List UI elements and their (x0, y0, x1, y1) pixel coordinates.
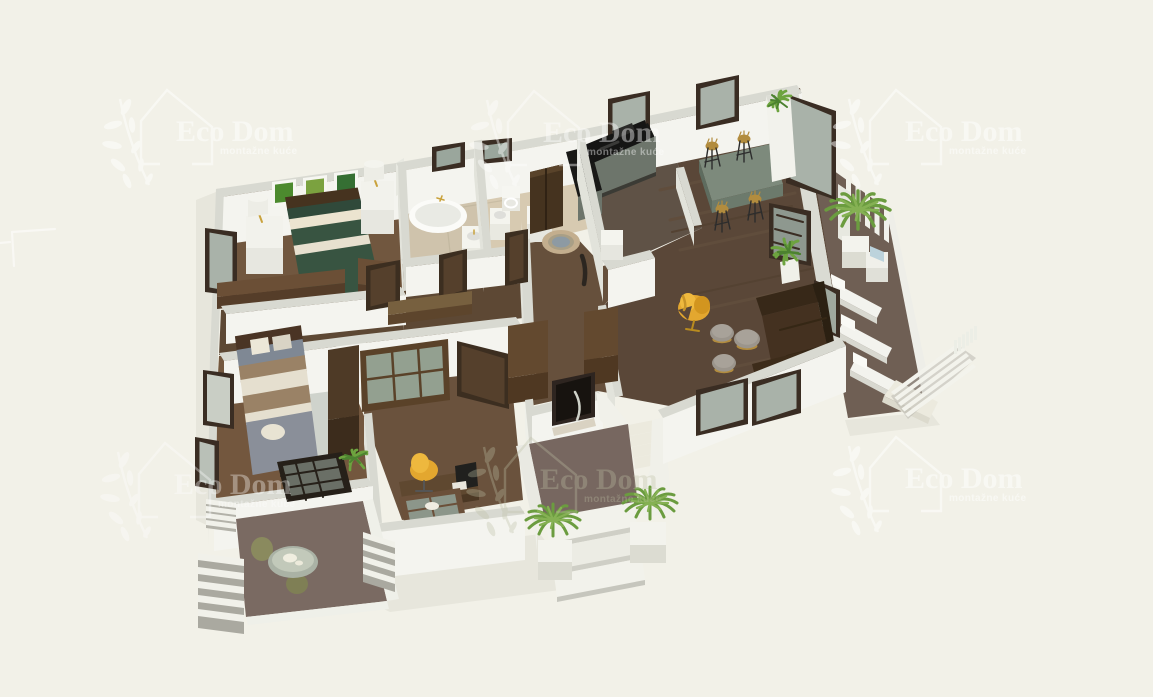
svg-text:Eco Dom: Eco Dom (174, 468, 291, 501)
svg-text:Eco Dom: Eco Dom (540, 463, 657, 496)
svg-text:montažne kuće: montažne kuće (220, 146, 297, 157)
svg-text:montažne kuće: montažne kuće (584, 494, 661, 505)
svg-text:Eco Dom: Eco Dom (905, 462, 1022, 495)
svg-text:montažne kuće: montažne kuće (949, 493, 1026, 504)
svg-text:montažne kuće: montažne kuće (218, 499, 295, 510)
svg-text:montažne kuće: montažne kuće (949, 146, 1026, 157)
svg-text:montažne kuće: montažne kuće (587, 147, 664, 158)
svg-text:Eco Dom: Eco Dom (905, 115, 1022, 148)
svg-text:Eco Dom: Eco Dom (176, 115, 293, 148)
svg-text:Eco Dom: Eco Dom (543, 116, 660, 149)
